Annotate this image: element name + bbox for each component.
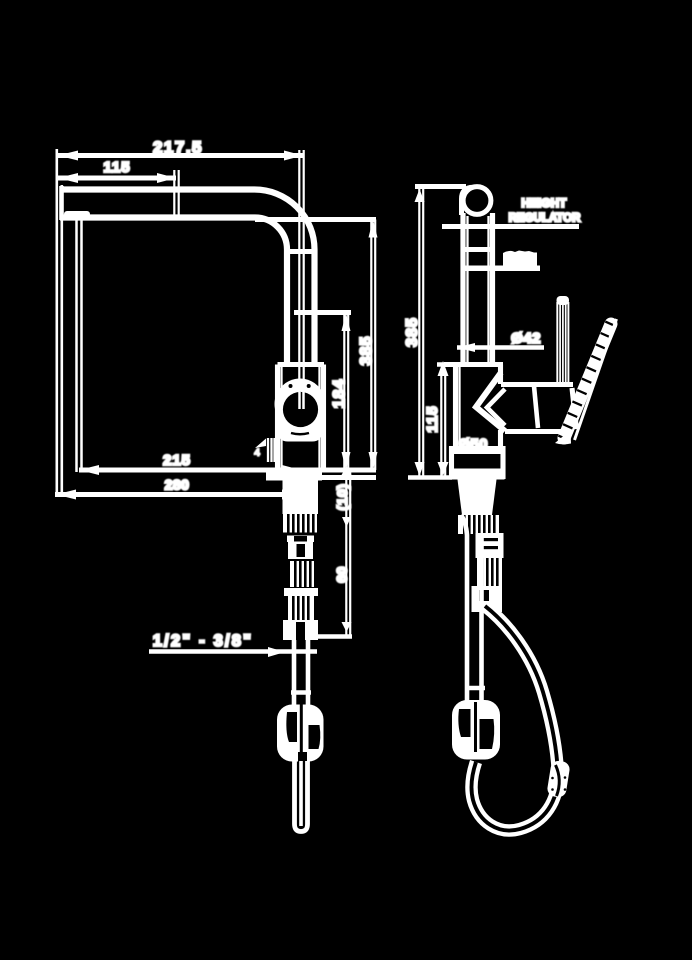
svg-text:60: 60: [334, 566, 350, 583]
svg-text:(10): (10): [334, 484, 350, 511]
svg-text:115: 115: [424, 405, 441, 432]
svg-text:HEIGHT: HEIGHT: [521, 198, 566, 210]
svg-text:280: 280: [165, 477, 190, 493]
svg-text:217.5: 217.5: [153, 138, 203, 157]
svg-text:385: 385: [358, 336, 375, 366]
svg-text:215: 215: [163, 452, 191, 469]
svg-text:Ø42: Ø42: [511, 330, 541, 347]
svg-text:4: 4: [254, 447, 261, 459]
svg-text:1/2" - 3/8": 1/2" - 3/8": [153, 632, 253, 650]
svg-text:REGULATOR: REGULATOR: [509, 213, 581, 225]
svg-text:115: 115: [103, 159, 130, 176]
svg-text:Ø50: Ø50: [458, 436, 488, 453]
svg-text:385: 385: [404, 317, 421, 347]
svg-text:184: 184: [331, 379, 348, 409]
